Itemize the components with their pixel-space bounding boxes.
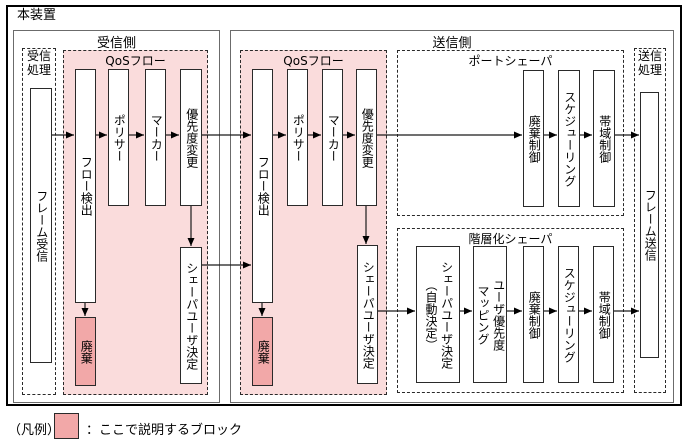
qos-block-diagram: 本装置 受信側 送信側 受信 処理 QoSフロー QoSフロー ポートシェーパ … [0, 0, 689, 447]
port-shaper-scheduling-box: スケジューリング [558, 70, 580, 207]
rx-marker-box: マーカー [145, 69, 166, 206]
legend-prefix: （凡例） [8, 419, 60, 438]
device-label: 本装置 [17, 9, 56, 23]
rx-qos-flow-label: QoSフロー [63, 52, 208, 69]
tx-policer-box: ポリサー [287, 69, 308, 206]
legend-description: ：ここで説明するブロック [86, 419, 242, 438]
port-shaper-bandwidth-control-box: 帯域制御 [593, 70, 615, 207]
rx-shaper-user-box: シェーパユーザ決定 [180, 247, 202, 384]
rx-frame-receive-box: フレーム受信 [30, 88, 52, 363]
hier-user-priority-mapping-box: ユーザ優先度 マッピング [473, 246, 507, 383]
rx-discard-box: 廃棄 [75, 317, 96, 386]
port-shaper-discard-control-box: 廃棄制御 [523, 70, 544, 207]
hier-shaper-user-auto-box: シェーパユーザ決定 （自動決定） [416, 246, 460, 383]
tx-frame-send-box: フレーム送信 [640, 92, 659, 358]
tx-flow-detect-box: フロー検出 [252, 69, 273, 303]
tx-qos-flow-label: QoSフロー [240, 52, 387, 69]
hier-discard-control-box: 廃棄制御 [523, 246, 544, 383]
hier-bandwidth-control-box: 帯域制御 [593, 246, 614, 383]
port-shaper-box [397, 50, 624, 216]
rx-policer-box: ポリサー [108, 69, 129, 206]
tx-processing-label: 送信 処理 [634, 50, 666, 78]
rx-processing-label: 受信 処理 [22, 50, 56, 78]
hier-scheduling-box: スケジューリング [558, 246, 579, 383]
rx-flow-detect-box: フロー検出 [75, 69, 96, 303]
legend-highlight-swatch [54, 413, 79, 439]
tx-discard-box: 廃棄 [252, 317, 273, 386]
tx-priority-change-box: 優先度変更 [356, 69, 377, 206]
tx-section-label: 送信側 [230, 32, 674, 51]
tx-shaper-user-box: シェーパユーザ決定 [357, 245, 378, 384]
tx-marker-box: マーカー [322, 69, 343, 206]
port-shaper-label: ポートシェーパ [397, 52, 624, 69]
hier-shaper-label: 階層化シェーパ [397, 230, 624, 247]
rx-priority-change-box: 優先度変更 [180, 69, 202, 206]
